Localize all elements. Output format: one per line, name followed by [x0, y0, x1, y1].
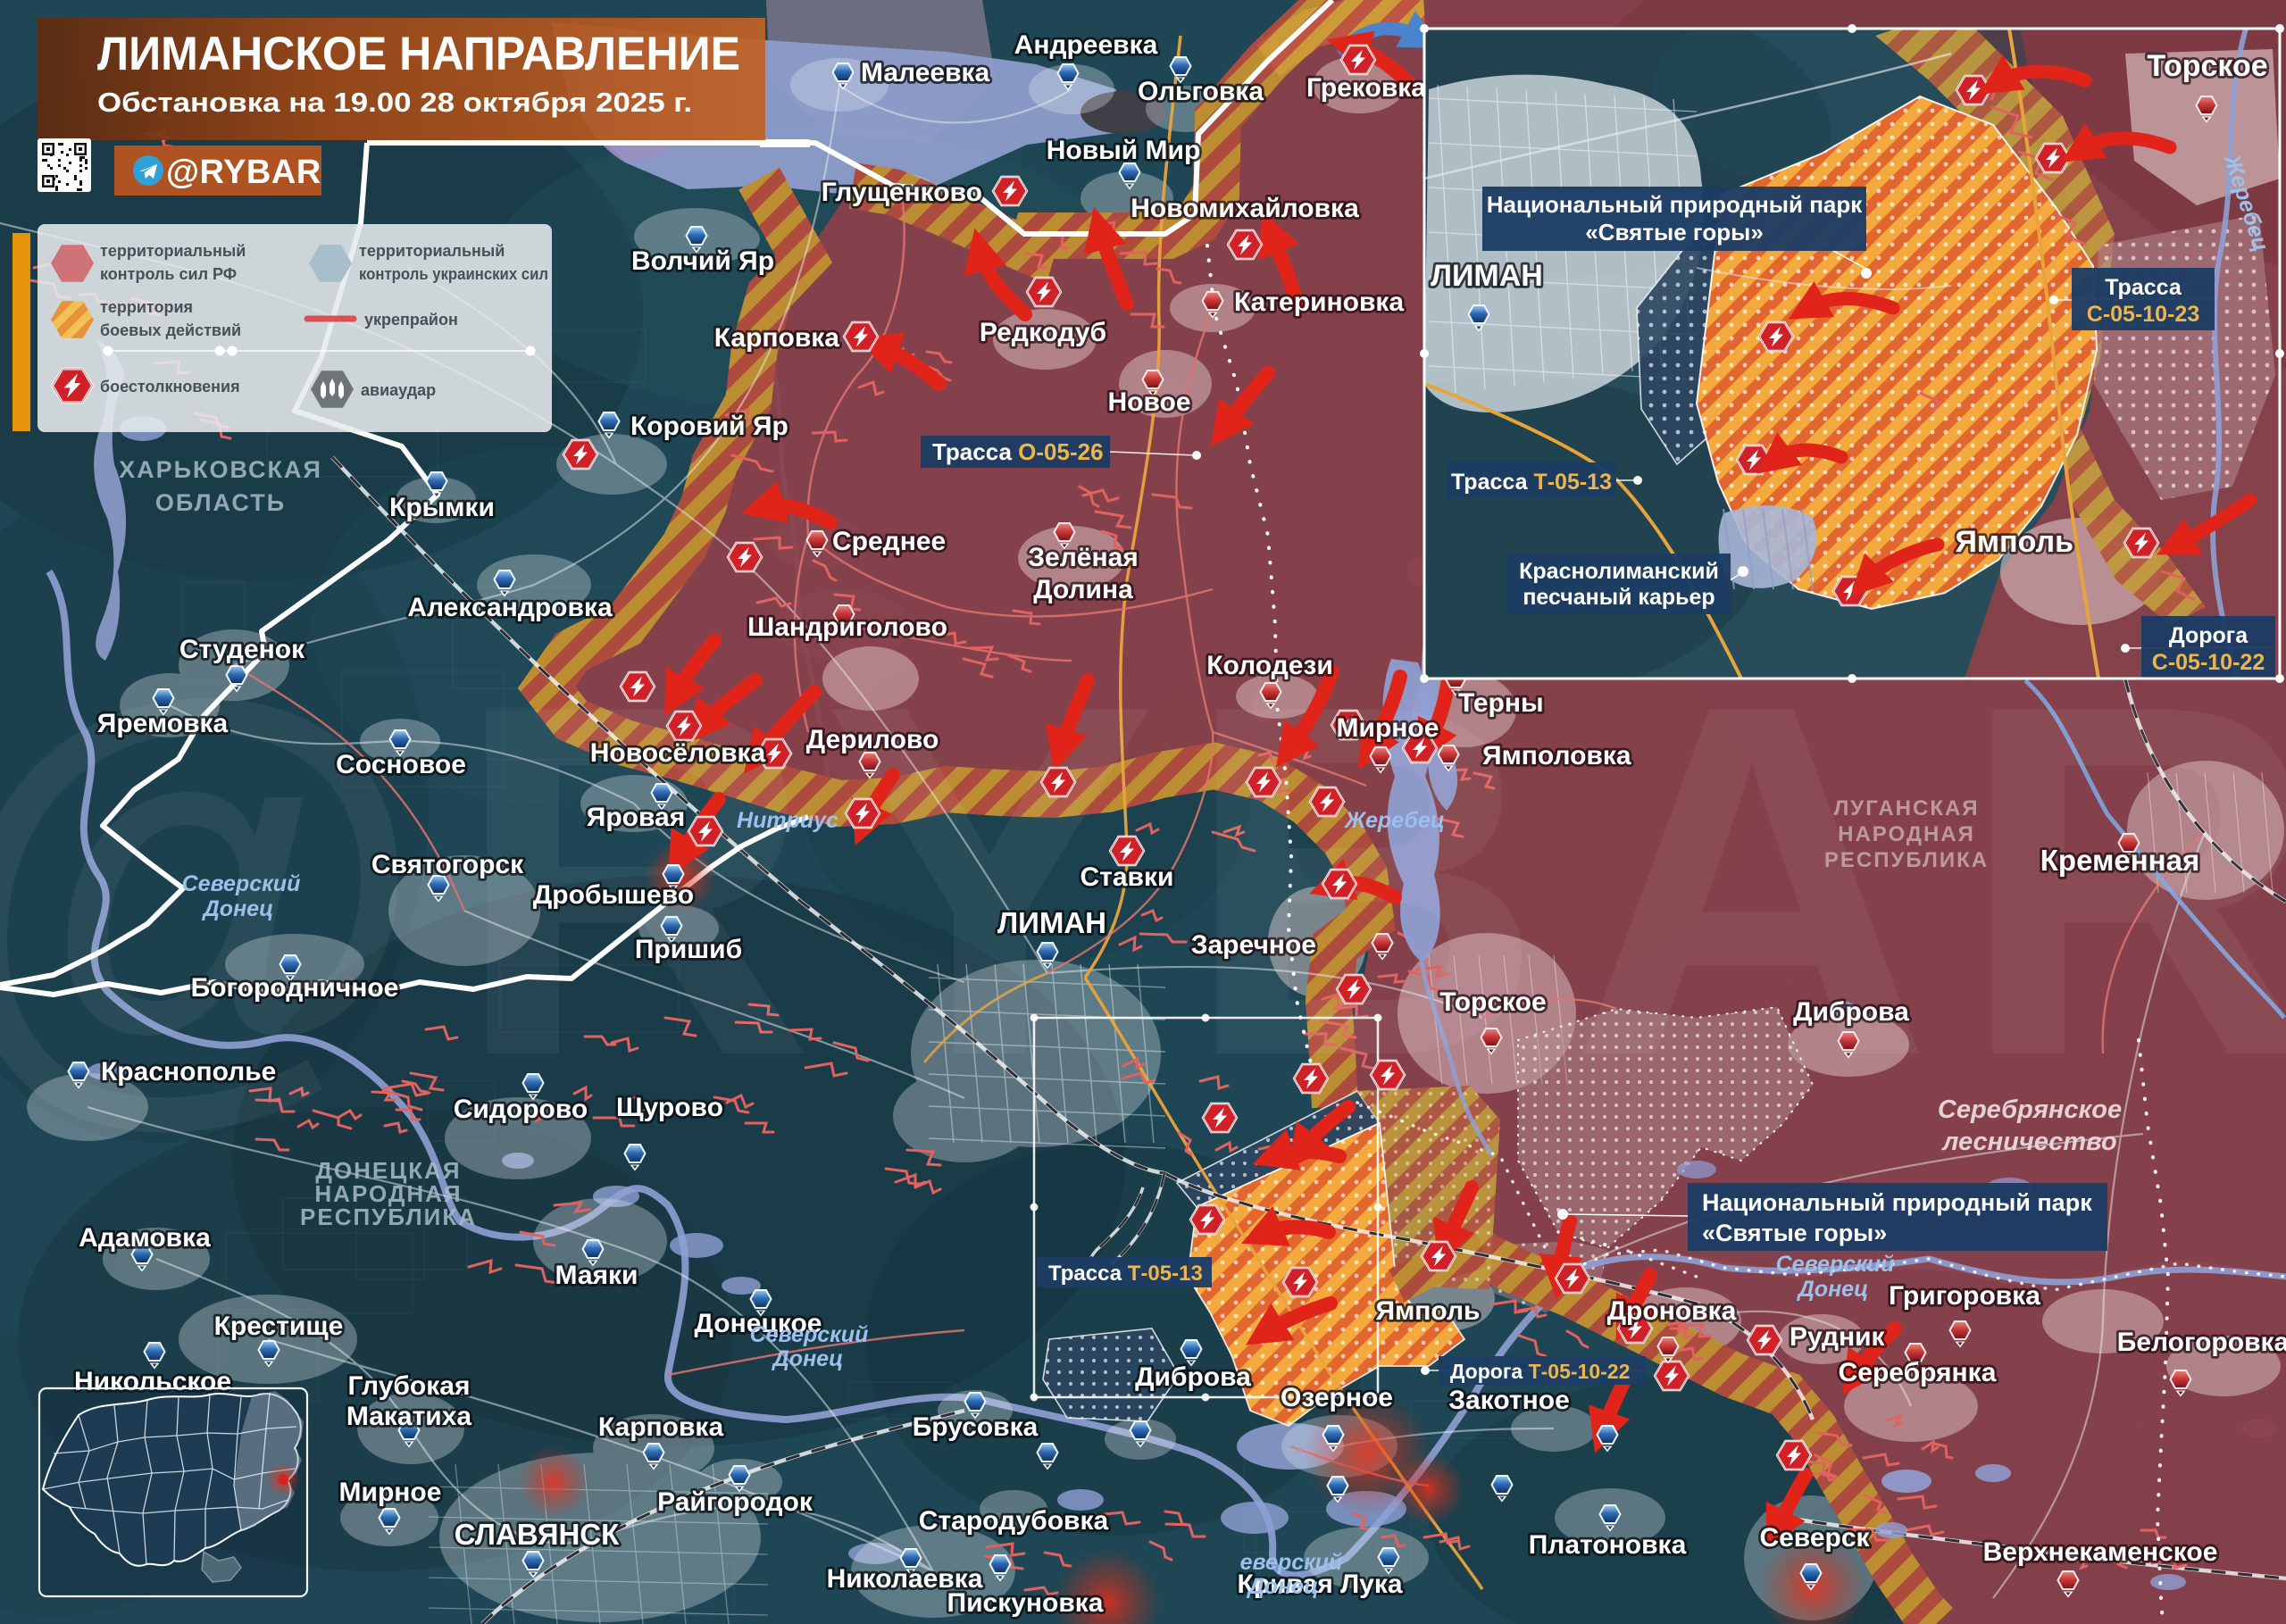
svg-text:Стародубовка: Стародубовка	[919, 1506, 1109, 1536]
svg-text:Дорога Т-05-10-22: Дорога Т-05-10-22	[1450, 1360, 1630, 1383]
svg-text:Новый Мир: Новый Мир	[1047, 136, 1201, 165]
svg-text:С-05-10-23: С-05-10-23	[2087, 302, 2199, 327]
svg-text:Донец: Донец	[1247, 1574, 1318, 1599]
svg-text:Глущенково: Глущенково	[822, 178, 982, 207]
svg-text:ЛИМАН: ЛИМАН	[1431, 259, 1543, 293]
svg-text:Национальный природный парк: Национальный природный парк	[1487, 191, 1864, 218]
svg-text:Северск: Северск	[1759, 1523, 1870, 1553]
svg-text:Донец: Донец	[772, 1346, 843, 1371]
svg-text:авиаудар: авиаудар	[361, 381, 436, 399]
svg-text:Трасса О-05-26: Трасса О-05-26	[932, 438, 1104, 465]
svg-text:Григоровка: Григоровка	[1889, 1281, 2040, 1311]
svg-text:Ямполовка: Ямполовка	[1482, 741, 1631, 770]
svg-text:территориальный: территориальный	[100, 242, 246, 260]
svg-text:Краснополье: Краснополье	[101, 1057, 276, 1087]
svg-text:Богородничное: Богородничное	[191, 973, 399, 1003]
svg-text:контроль сил РФ: контроль сил РФ	[100, 265, 237, 283]
svg-text:Крестище: Крестище	[214, 1312, 344, 1341]
svg-text:Колодези: Колодези	[1206, 651, 1333, 680]
svg-text:Мирное: Мирное	[1337, 713, 1439, 743]
svg-text:Жеребец: Жеребец	[1343, 808, 1445, 833]
svg-text:«Святые горы»: «Святые горы»	[1585, 219, 1764, 246]
svg-text:Глубокая: Глубокая	[348, 1371, 471, 1401]
svg-text:Дроновка: Дроновка	[1607, 1296, 1737, 1326]
svg-text:Донец: Донец	[1797, 1277, 1868, 1302]
svg-text:РЕСПУБЛИКА: РЕСПУБЛИКА	[300, 1203, 477, 1230]
svg-text:Дерилово: Дерилово	[806, 725, 939, 754]
svg-text:Диброва: Диброва	[1793, 997, 1909, 1027]
svg-text:Райгородок: Райгородок	[657, 1487, 813, 1517]
svg-text:Шандриголово: Шандриголово	[747, 612, 947, 642]
svg-text:Адамовка: Адамовка	[79, 1223, 211, 1253]
svg-text:Терны: Терны	[1458, 688, 1544, 718]
svg-text:еверский: еверский	[1240, 1550, 1343, 1575]
svg-text:Пришиб: Пришиб	[635, 935, 742, 964]
svg-text:Карповка: Карповка	[714, 323, 840, 353]
svg-text:Маяки: Маяки	[555, 1261, 638, 1290]
svg-text:Среднее: Среднее	[832, 527, 946, 556]
svg-text:Верхнекаменское: Верхнекаменское	[1983, 1537, 2218, 1567]
svg-text:Волчий Яр: Волчий Яр	[631, 246, 774, 276]
svg-text:Редкодуб: Редкодуб	[980, 318, 1106, 347]
svg-text:Трасса Т-05-13: Трасса Т-05-13	[1048, 1262, 1203, 1286]
svg-text:С-05-10-22: С-05-10-22	[2152, 650, 2265, 675]
svg-text:Сосновое: Сосновое	[336, 750, 466, 779]
svg-text:Брусовка: Брусовка	[913, 1412, 1039, 1442]
svg-text:Малеевка: Малеевка	[861, 58, 990, 87]
svg-text:Северский: Северский	[750, 1322, 869, 1347]
svg-text:Александровка: Александровка	[407, 593, 613, 622]
svg-text:Серебрянское: Серебрянское	[1938, 1095, 2122, 1124]
svg-text:Новосёловка: Новосёловка	[590, 738, 766, 768]
svg-text:Крымки: Крымки	[389, 493, 495, 522]
svg-text:лесничество: лесничество	[1940, 1128, 2116, 1156]
svg-text:Обстановка на 19.00 28 октября: Обстановка на 19.00 28 октября 2025 г.	[97, 87, 692, 118]
svg-text:Северский: Северский	[182, 871, 301, 896]
svg-text:Долина: Долина	[1033, 575, 1133, 604]
svg-text:Щурово: Щурово	[616, 1093, 723, 1122]
svg-text:ХАРЬКОВСКАЯ: ХАРЬКОВСКАЯ	[119, 456, 322, 483]
svg-text:Белогоровка: Белогоровка	[2117, 1328, 2286, 1357]
svg-text:ЛИМАНСКОЕ НАПРАВЛЕНИЕ: ЛИМАНСКОЕ НАПРАВЛЕНИЕ	[97, 28, 740, 80]
svg-text:боевых действий: боевых действий	[100, 321, 241, 339]
svg-text:Национальный природный парк: Национальный природный парк	[1702, 1189, 2092, 1216]
svg-text:Ольговка: Ольговка	[1138, 77, 1264, 106]
svg-text:контроль украинских сил: контроль украинских сил	[359, 265, 548, 283]
svg-text:«Святые горы»: «Святые горы»	[1702, 1220, 1887, 1246]
svg-text:Ямполь: Ямполь	[1376, 1296, 1481, 1326]
svg-text:@RYBAR: @RYBAR	[166, 154, 321, 191]
svg-text:СЛАВЯНСК: СЛАВЯНСК	[455, 1518, 620, 1551]
svg-text:боестолкновения: боестолкновения	[100, 378, 240, 396]
svg-text:Северский: Северский	[1776, 1252, 1895, 1277]
svg-text:Святогорск: Святогорск	[371, 850, 524, 879]
svg-text:Закотное: Закотное	[1448, 1386, 1570, 1415]
svg-text:Трасса Т-05-13: Трасса Т-05-13	[1451, 470, 1612, 495]
svg-text:территориальный: территориальный	[359, 242, 505, 260]
svg-text:территория: территория	[100, 298, 193, 316]
svg-text:Нитриус: Нитриус	[737, 808, 838, 833]
svg-text:ЛУГАНСКАЯ: ЛУГАНСКАЯ	[1833, 796, 1979, 820]
svg-text:Яремовка: Яремовка	[97, 709, 229, 738]
svg-text:Заречное: Заречное	[1191, 930, 1316, 960]
svg-text:Пискуновка: Пискуновка	[947, 1588, 1104, 1618]
svg-text:РЕСПУБЛИКА: РЕСПУБЛИКА	[1824, 848, 1989, 872]
svg-text:Ямполь: Ямполь	[1955, 525, 2073, 559]
svg-text:Новое: Новое	[1107, 387, 1190, 417]
svg-text:Дробышево: Дробышево	[533, 880, 694, 910]
svg-text:Трасса: Трасса	[2105, 275, 2182, 300]
svg-text:Торское: Торское	[1439, 987, 1546, 1017]
svg-text:Платоновка: Платоновка	[1529, 1530, 1687, 1560]
svg-text:Диброва: Диброва	[1135, 1362, 1251, 1392]
svg-text:Новомихайловка: Новомихайловка	[1130, 194, 1359, 223]
svg-text:Рудник: Рудник	[1790, 1322, 1886, 1352]
svg-text:Карповка: Карповка	[598, 1412, 724, 1442]
svg-text:Краснолиманский: Краснолиманский	[1519, 559, 1719, 584]
svg-text:Кременная: Кременная	[2040, 844, 2199, 877]
svg-text:Ставки: Ставки	[1080, 862, 1174, 892]
svg-text:Андреевка: Андреевка	[1014, 30, 1158, 60]
svg-text:Торское: Торское	[2147, 49, 2267, 83]
svg-text:Зелёная: Зелёная	[1028, 543, 1139, 572]
svg-text:НАРОДНАЯ: НАРОДНАЯ	[1838, 822, 1975, 846]
svg-text:Серебрянка: Серебрянка	[1839, 1358, 1997, 1387]
svg-text:Грековка: Грековка	[1306, 73, 1426, 103]
svg-text:укрепрайон: укрепрайон	[364, 311, 458, 329]
svg-text:Макатиха: Макатиха	[346, 1402, 472, 1431]
svg-text:Студенок: Студенок	[179, 635, 305, 664]
svg-text:Донец: Донец	[202, 896, 273, 921]
svg-text:Яровая: Яровая	[587, 803, 685, 832]
svg-text:Катериновка: Катериновка	[1234, 287, 1404, 317]
svg-text:Озерное: Озерное	[1281, 1383, 1393, 1412]
svg-text:Сидорово: Сидорово	[454, 1095, 588, 1124]
svg-text:Мирное: Мирное	[339, 1478, 442, 1507]
svg-text:Дорога: Дорога	[2169, 623, 2248, 648]
svg-text:ОБЛАСТЬ: ОБЛАСТЬ	[155, 489, 286, 516]
svg-text:Коровий Яр: Коровий Яр	[630, 412, 788, 441]
svg-text:песчаный карьер: песчаный карьер	[1523, 585, 1714, 610]
svg-text:ЛИМАН: ЛИМАН	[997, 906, 1106, 939]
